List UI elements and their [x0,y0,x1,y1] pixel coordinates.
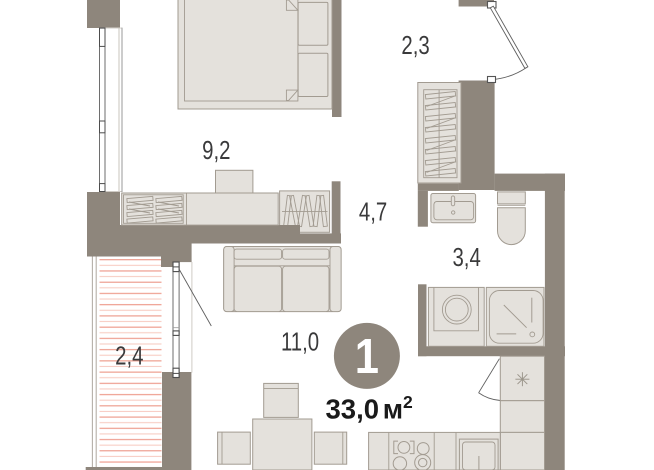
svg-text:2: 2 [403,392,413,412]
svg-text:2,4: 2,4 [115,342,143,371]
svg-text:2,3: 2,3 [401,31,429,60]
svg-text:9,2: 9,2 [202,136,230,165]
svg-text:11,0: 11,0 [281,327,319,356]
svg-text:1: 1 [355,329,379,384]
svg-text:4,7: 4,7 [359,197,387,226]
svg-text:3,4: 3,4 [452,243,480,272]
svg-text:33,0: 33,0 [326,393,380,424]
svg-text:м: м [383,393,403,424]
